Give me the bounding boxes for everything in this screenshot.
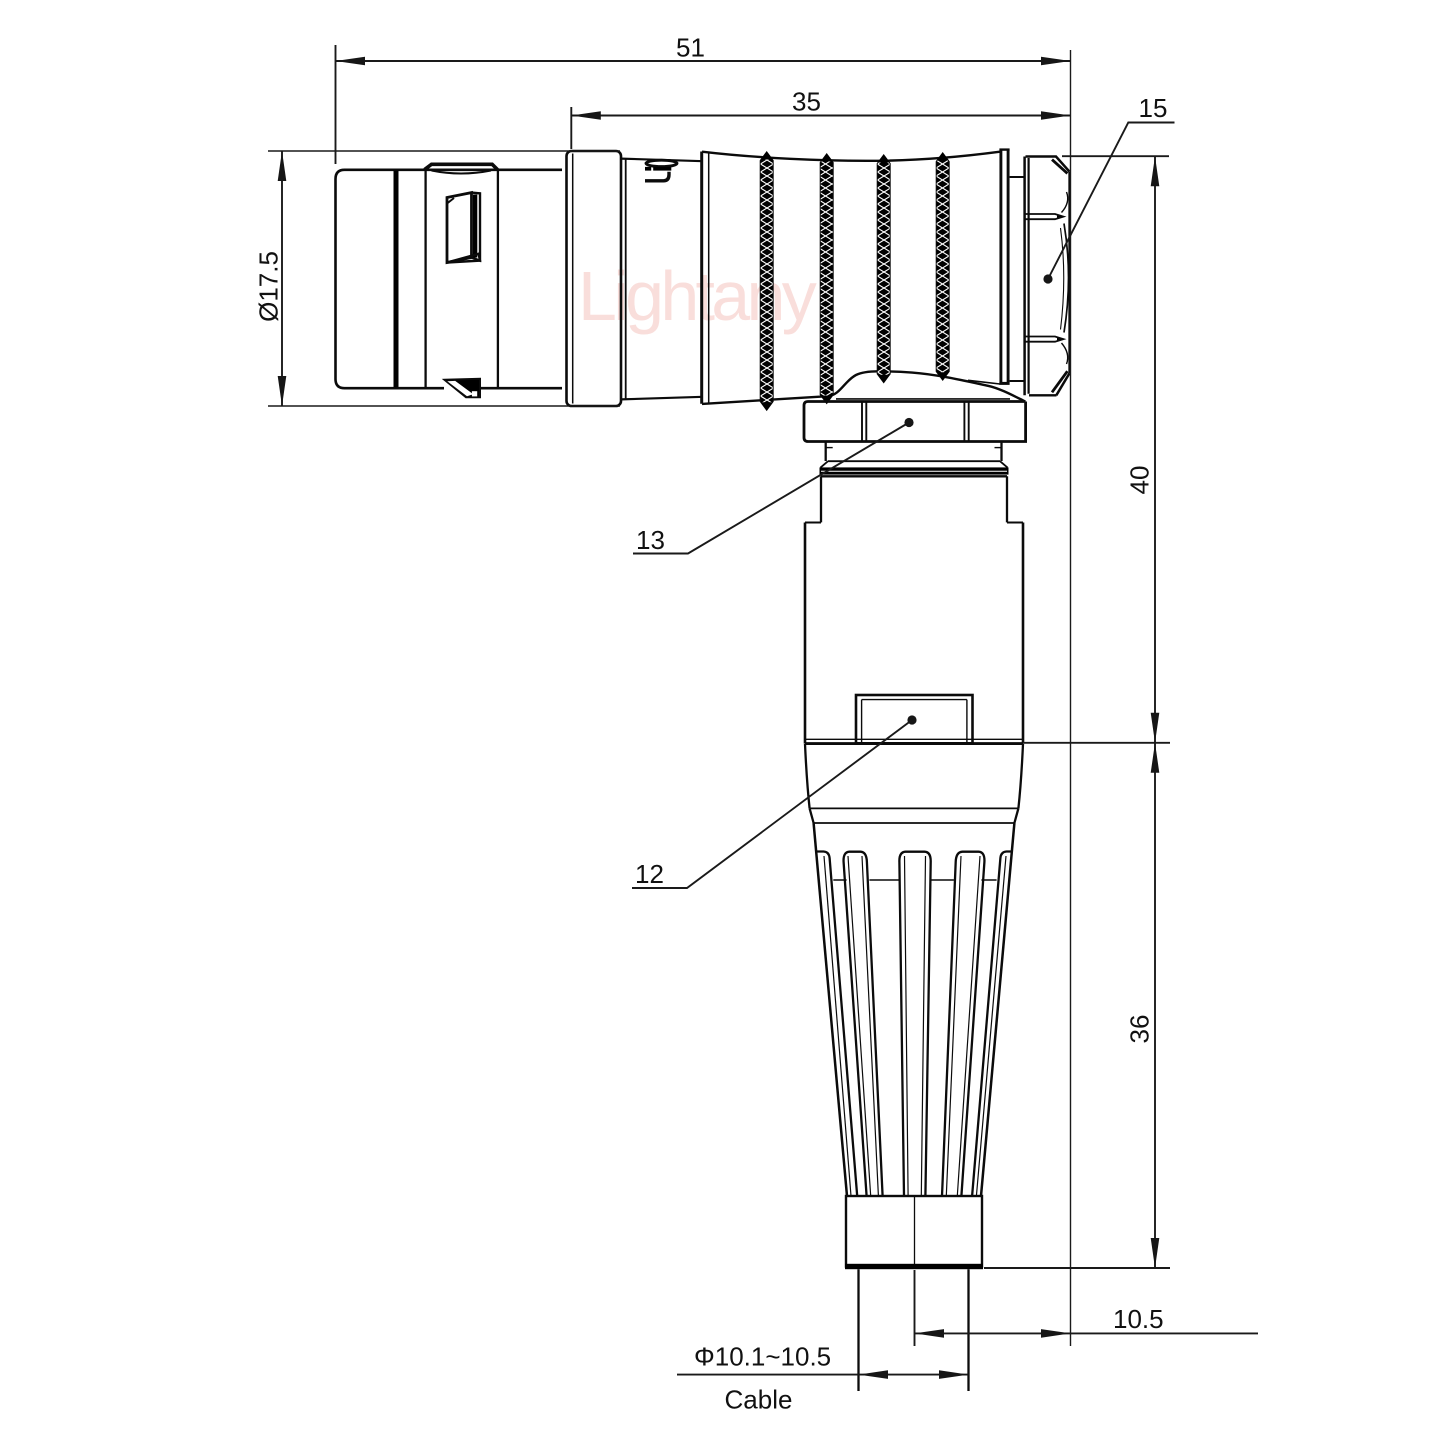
svg-text:12: 12 [635,859,664,889]
svg-text:Ø17.5: Ø17.5 [254,251,284,322]
svg-text:Φ10.1~10.5: Φ10.1~10.5 [694,1342,831,1372]
svg-text:51: 51 [676,33,705,63]
svg-text:Cable: Cable [725,1385,793,1415]
svg-text:13: 13 [636,525,665,555]
svg-text:10.5: 10.5 [1113,1304,1164,1334]
svg-text:36: 36 [1125,1015,1155,1044]
svg-text:15: 15 [1139,93,1168,123]
svg-text:Lightany: Lightany [578,257,817,335]
svg-text:40: 40 [1125,466,1155,495]
svg-text:35: 35 [792,87,821,117]
